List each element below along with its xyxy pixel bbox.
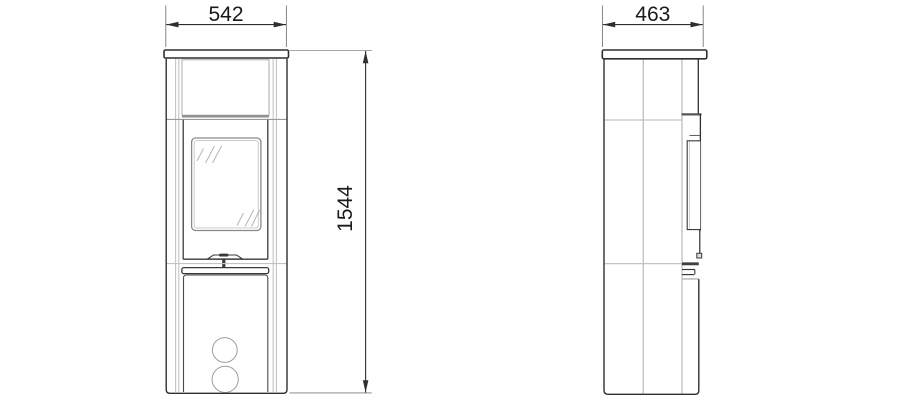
front-fire-door: [183, 120, 268, 259]
arrowhead-up-icon: [363, 51, 369, 63]
door-handle: [208, 254, 243, 268]
arrowhead-left-icon: [603, 22, 615, 28]
dimension-side-depth: 463: [603, 3, 704, 47]
arrowhead-left-icon: [166, 22, 178, 28]
front-width-label: 542: [208, 3, 243, 26]
arrowhead-right-icon: [691, 22, 703, 28]
arrowhead-right-icon: [274, 22, 286, 28]
dimension-height: 1544: [290, 51, 372, 393]
side-view: [602, 50, 707, 394]
front-upper-panel: [182, 60, 269, 115]
front-view: [164, 50, 289, 393]
side-body-outline: [604, 59, 699, 395]
dimension-front-width: 542: [166, 3, 287, 47]
side-panel-joints: [605, 59, 683, 394]
lower-door-circle-top: [212, 338, 237, 363]
height-label: 1544: [334, 185, 357, 232]
drawing-canvas: 542 463 1544: [0, 0, 900, 400]
stove-technical-drawing: 542 463 1544: [0, 0, 900, 400]
side-top-plate: [602, 50, 707, 59]
front-lower-door: [182, 268, 269, 393]
lower-door-circle-bottom: [212, 366, 238, 392]
side-depth-label: 463: [635, 3, 670, 26]
side-latch-knob: [697, 253, 702, 258]
handle-cap: [219, 254, 229, 257]
front-top-plate: [164, 50, 289, 58]
arrowhead-down-icon: [363, 380, 369, 392]
side-door-profile: [682, 59, 702, 279]
lower-door-top-bar: [182, 268, 269, 274]
